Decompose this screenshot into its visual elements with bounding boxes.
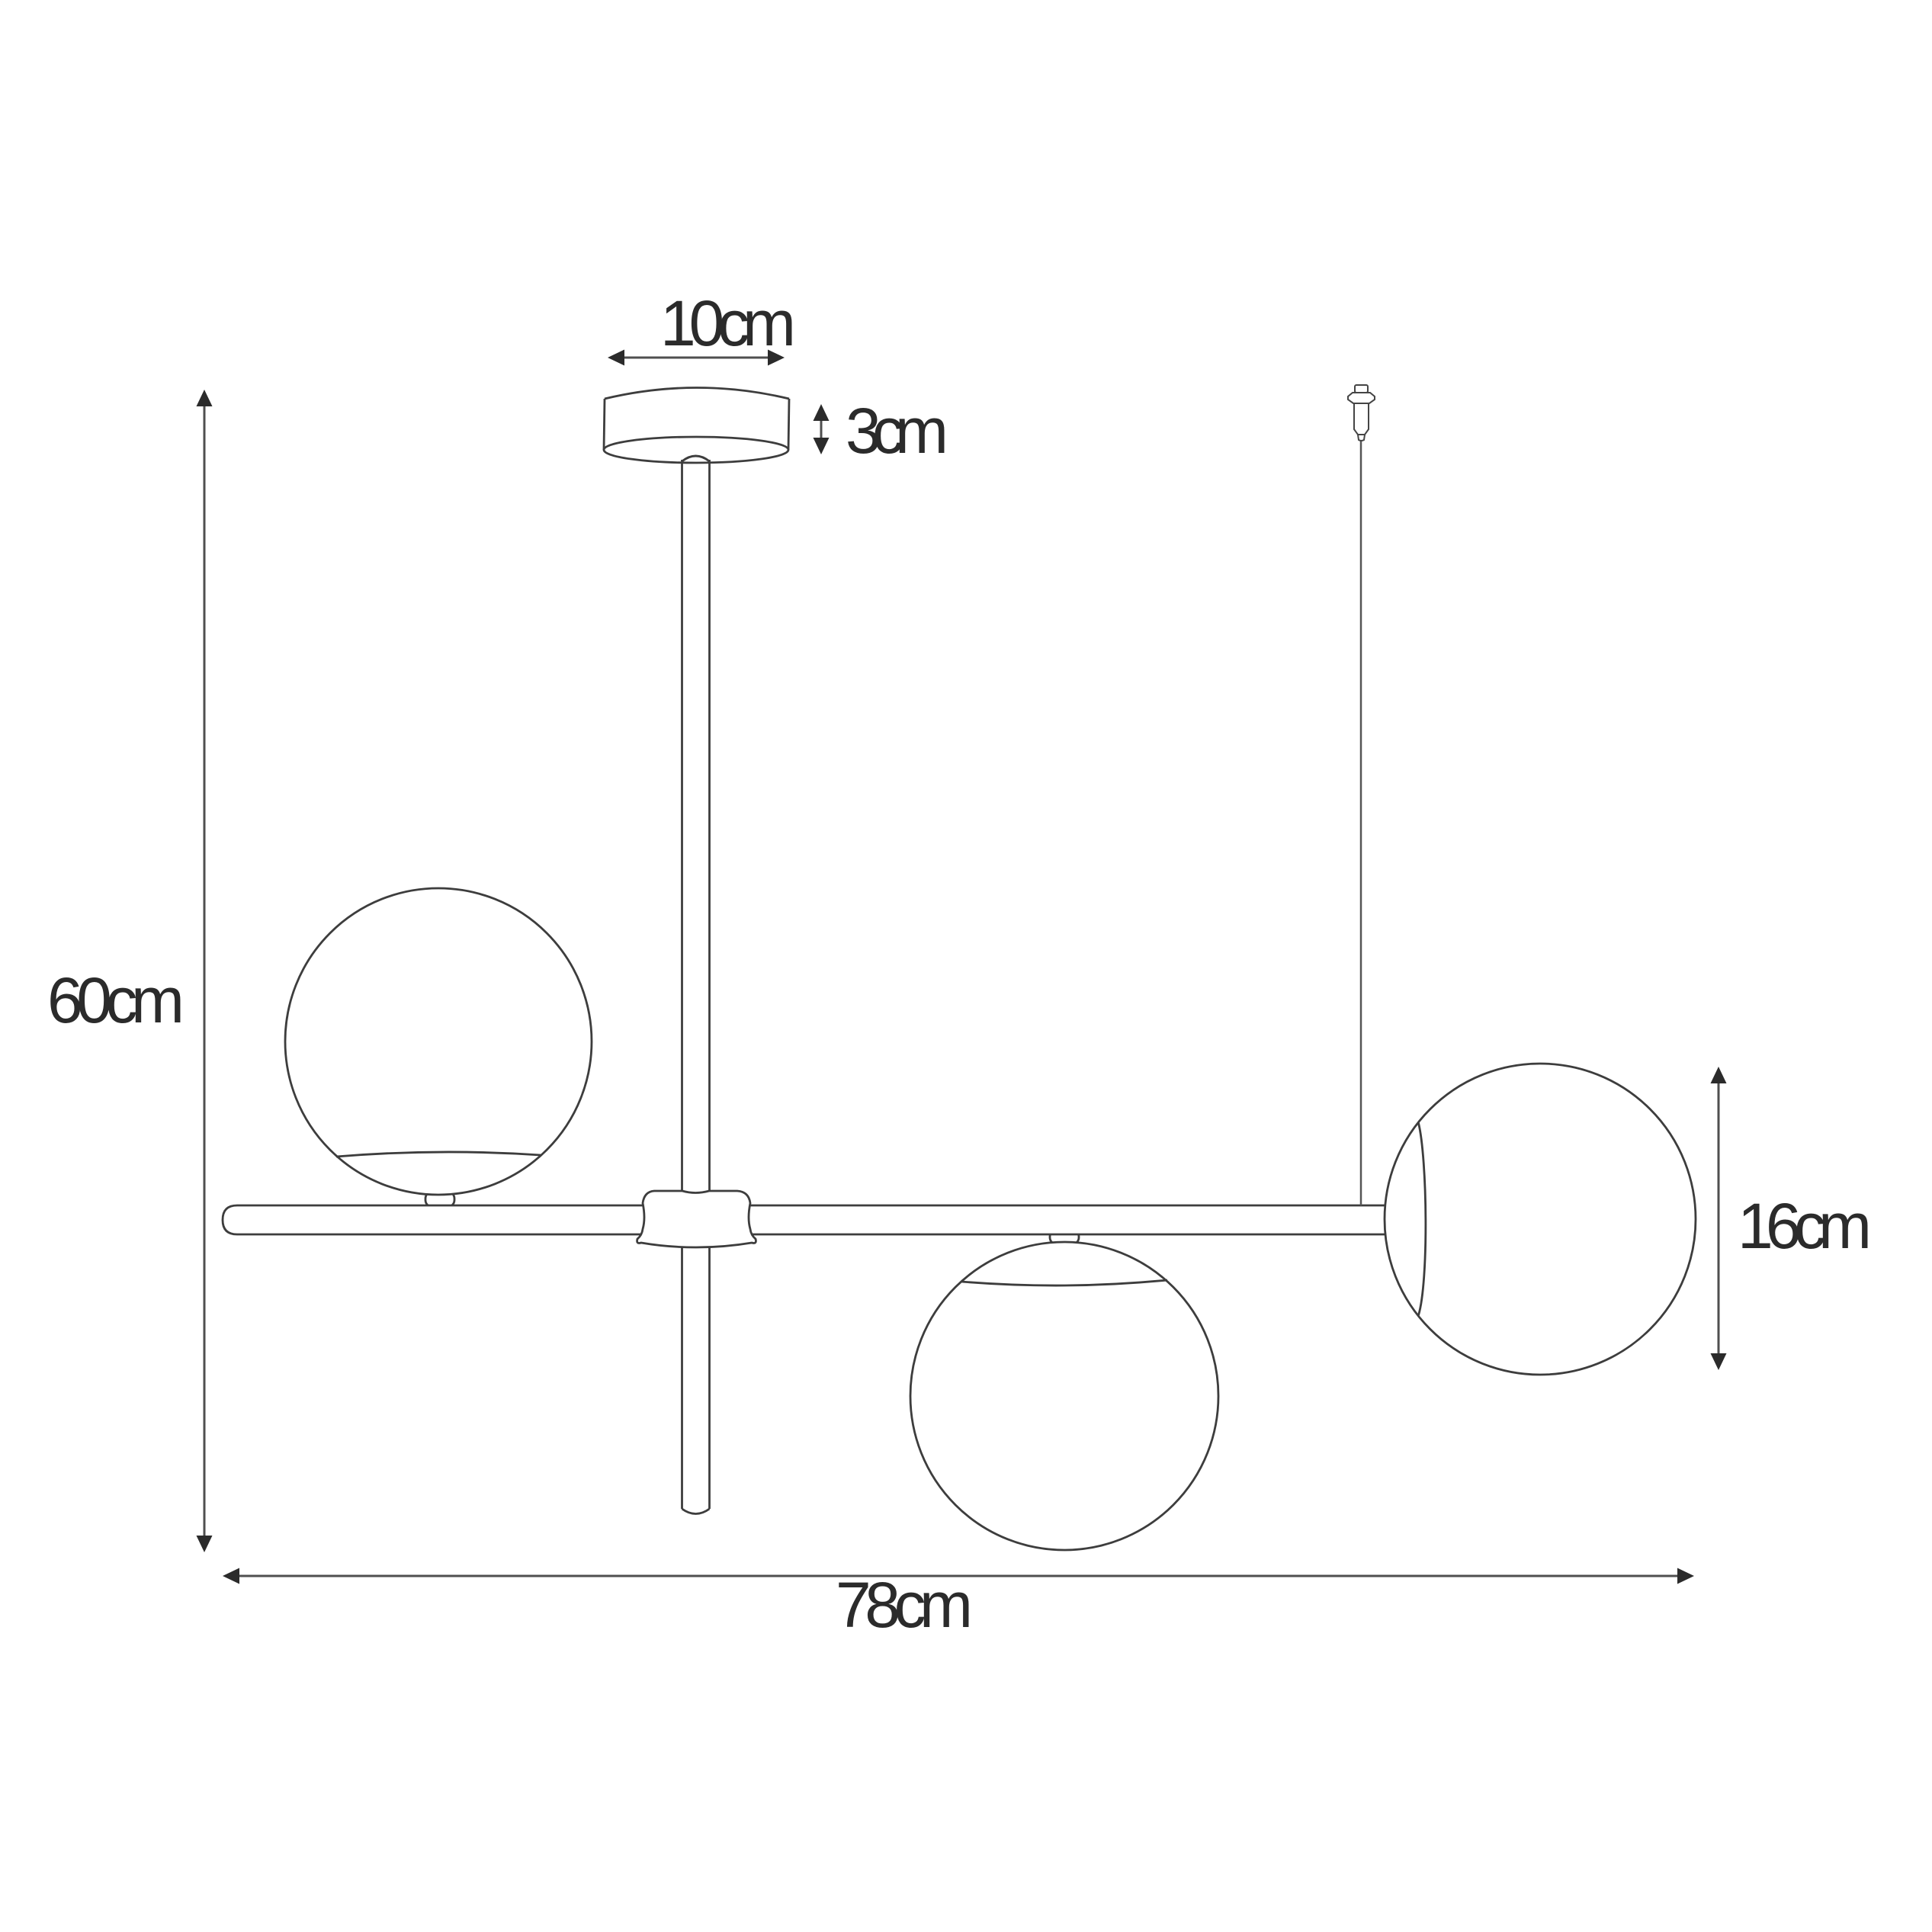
svg-text:78cm: 78cm [836, 1569, 973, 1641]
svg-text:3cm: 3cm [846, 395, 948, 467]
svg-text:60cm: 60cm [47, 964, 185, 1036]
svg-text:10cm: 10cm [660, 287, 796, 359]
svg-text:16cm: 16cm [1738, 1190, 1872, 1262]
